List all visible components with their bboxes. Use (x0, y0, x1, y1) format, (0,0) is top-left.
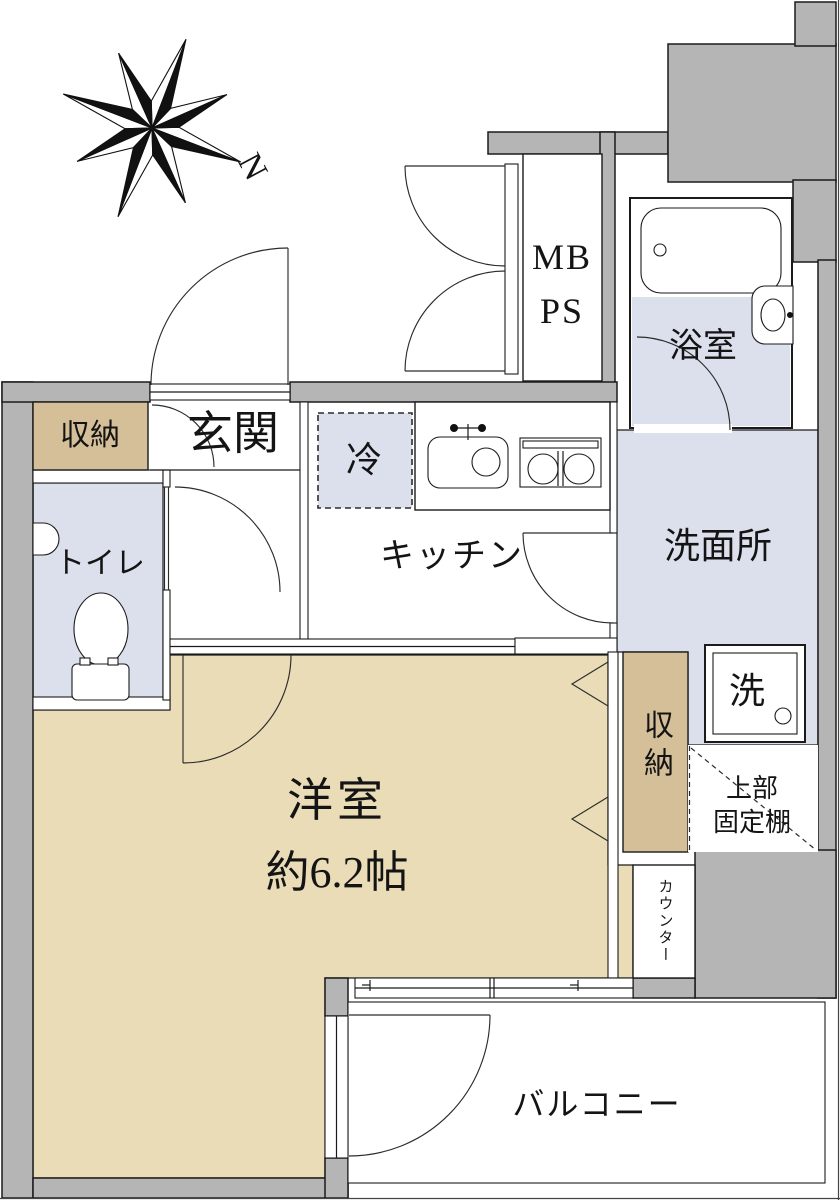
wall-toilet-top (33, 470, 163, 483)
floor-plan-drawing (0, 0, 840, 1200)
upper-shelf-label-1: 上部 (726, 776, 778, 802)
toilet-label: トイレ (55, 549, 145, 579)
western-room-label: 洋室 (287, 778, 387, 824)
ps-label: PS (540, 293, 584, 329)
wall-top-right-block (668, 44, 836, 182)
wall-toilet-right-lower (163, 590, 170, 700)
fridge-label: 冷 (346, 442, 382, 478)
wall-right-step (793, 180, 836, 262)
wall-kitchen-room (515, 638, 617, 654)
faucet-knob-left (451, 425, 458, 432)
wall-bottom (33, 1178, 348, 1198)
entrance-door-arc (151, 248, 288, 385)
stove-back-bar (523, 441, 598, 448)
floor-plan: N MB PS 浴室 収納 玄関 冷 キッチン 洗面所 トイレ 洗 収納 上部 … (0, 0, 840, 1200)
wall-toilet-right-upper (163, 470, 170, 487)
upper-shelf-label-2: 固定棚 (713, 810, 791, 836)
washroom-door-arc (523, 533, 613, 623)
toilet-hinge-left (80, 658, 90, 665)
mbps-door-arc-bottom (405, 271, 505, 371)
entrance-label: 玄関 (187, 411, 279, 457)
closet-track (608, 652, 618, 978)
wall-top-band (488, 132, 668, 154)
wall-kitchen-washroom-upper (610, 402, 617, 533)
entry-storage-label: 収納 (60, 421, 120, 451)
toilet-bowl-icon (74, 593, 128, 665)
wall-balcony-pier-bottom (325, 1158, 348, 1198)
counter-label: カウンター (657, 879, 672, 964)
sink-drain-icon (472, 448, 500, 476)
bathroom-door-opening (634, 424, 732, 433)
bath-basin-icon (761, 299, 785, 331)
wall-entry-right (290, 382, 617, 402)
balcony-label: バルコニー (512, 1088, 681, 1120)
mb-label: MB (532, 239, 592, 275)
stove-burner-left (528, 454, 558, 484)
wall-under-window (633, 978, 695, 998)
compass-icon (63, 39, 240, 216)
toilet-door-arc (175, 487, 280, 592)
mbps-door-arc-top (405, 166, 505, 266)
bath-basin-tap (788, 313, 793, 318)
bathtub-drain-icon (654, 244, 666, 256)
washer-label: 洗 (729, 673, 765, 709)
bathroom-label: 浴室 (669, 330, 737, 364)
kitchen-label: キッチン (380, 540, 524, 574)
washroom-label: 洗面所 (664, 528, 772, 564)
wall-balcony-pier-top (325, 978, 348, 1016)
western-room-size-label: 約6.2帖 (266, 851, 409, 895)
right-storage-label: 収納 (640, 709, 670, 785)
wall-bottom-right-block (695, 850, 836, 998)
wall-entrance-kitchen (300, 402, 308, 641)
toilet-tank-icon (72, 664, 129, 700)
stove-burner-right (564, 454, 594, 484)
wall-left (2, 382, 33, 1198)
washer-drain-icon (775, 708, 791, 724)
wall-entry-left (2, 382, 150, 402)
wall-top-right-corner (795, 2, 836, 46)
toilet-hinge-right (108, 658, 118, 665)
mbps-door-frame (505, 164, 518, 374)
faucet-knob-right (479, 425, 486, 432)
